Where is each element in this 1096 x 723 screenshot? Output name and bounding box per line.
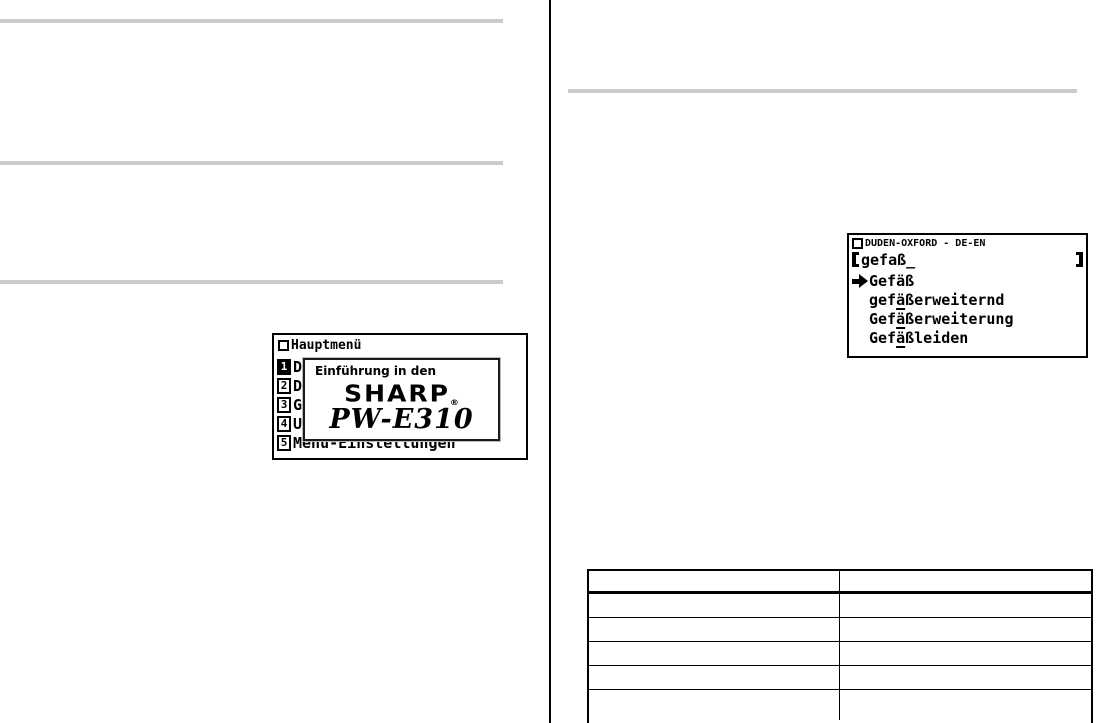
menu-number-badge: 3 <box>277 397 291 413</box>
table-cell <box>589 666 840 689</box>
result-row: gefäßerweiternd <box>852 290 1004 309</box>
menu-number-badge: 2 <box>277 378 291 394</box>
menu-item-2: 2 D <box>277 376 302 395</box>
menu-number-badge: 5 <box>277 435 291 451</box>
menu-item-1: 1 D <box>277 357 302 376</box>
menu-item-4: 4 U <box>277 414 302 433</box>
table-row <box>589 690 1091 720</box>
sharp-logo-text: SHARP <box>344 380 450 407</box>
lcd-screenshot-main-menu: Hauptmenü 1 D 2 D 3 G 4 U 5 Menü-Einstel… <box>272 333 528 460</box>
table-cell <box>840 666 1091 689</box>
section-rule <box>0 19 503 23</box>
table-cell <box>589 594 840 617</box>
table-cell <box>840 618 1091 641</box>
result-word: Gefäß <box>869 272 914 290</box>
table-row <box>589 666 1091 690</box>
table-cell <box>589 618 840 641</box>
menu-item-label-fragment: G <box>293 396 302 414</box>
result-row-selected: Gefäß <box>852 271 914 290</box>
table-row <box>589 618 1091 642</box>
table-row <box>589 642 1091 666</box>
search-input-value: gefaß_ <box>861 251 915 269</box>
result-word: Gefäßleiden <box>869 329 968 347</box>
table-cell <box>589 642 840 665</box>
lcd-title-bar: DUDEN-OXFORD - DE-EN <box>852 238 985 249</box>
section-rule <box>568 89 1077 93</box>
model-name: PW-E310 <box>305 404 498 435</box>
result-word: gefäßerweiternd <box>869 291 1004 309</box>
notes-table <box>587 569 1093 723</box>
manual-page: Hauptmenü 1 D 2 D 3 G 4 U 5 Menü-Einstel… <box>0 0 1096 723</box>
section-rule <box>0 161 503 165</box>
menu-item-3: 3 G <box>277 395 302 414</box>
section-rule <box>0 280 503 284</box>
table-cell <box>840 690 1091 720</box>
table-header-cell <box>589 571 840 591</box>
menu-item-label-fragment: D <box>293 358 302 376</box>
menu-number-badge: 4 <box>277 416 291 432</box>
window-square-icon <box>278 340 289 351</box>
result-word: Gefäßerweiterung <box>869 310 1014 328</box>
lcd-screenshot-dictionary: DUDEN-OXFORD - DE-EN gefaß_ Gefäß gefäße… <box>847 233 1088 358</box>
bracket-open-icon <box>852 252 859 267</box>
table-cell <box>840 642 1091 665</box>
menu-item-label-fragment: U <box>293 415 302 433</box>
window-square-icon <box>852 238 863 249</box>
table-row <box>589 594 1091 618</box>
lcd-title-bar: Hauptmenü <box>278 338 361 353</box>
selection-arrow-icon <box>852 274 869 288</box>
lcd-title: DUDEN-OXFORD - DE-EN <box>865 238 985 249</box>
splash-intro-text: Einführung in den <box>315 364 436 378</box>
table-header-row <box>589 571 1091 594</box>
result-row: Gefäßleiden <box>852 328 968 347</box>
menu-number-badge: 1 <box>277 359 291 375</box>
menu-item-label-fragment: D <box>293 377 302 395</box>
bracket-close-icon <box>1076 252 1083 267</box>
lcd-title: Hauptmenü <box>291 338 361 353</box>
result-row: Gefäßerweiterung <box>852 309 1014 328</box>
column-divider <box>549 0 551 723</box>
search-entry-row: gefaß_ <box>852 251 1083 269</box>
table-cell <box>840 594 1091 617</box>
table-header-cell <box>840 571 1091 591</box>
table-cell <box>589 690 840 720</box>
startup-splash-popup: Einführung in den SHARP® PW-E310 <box>303 358 500 441</box>
